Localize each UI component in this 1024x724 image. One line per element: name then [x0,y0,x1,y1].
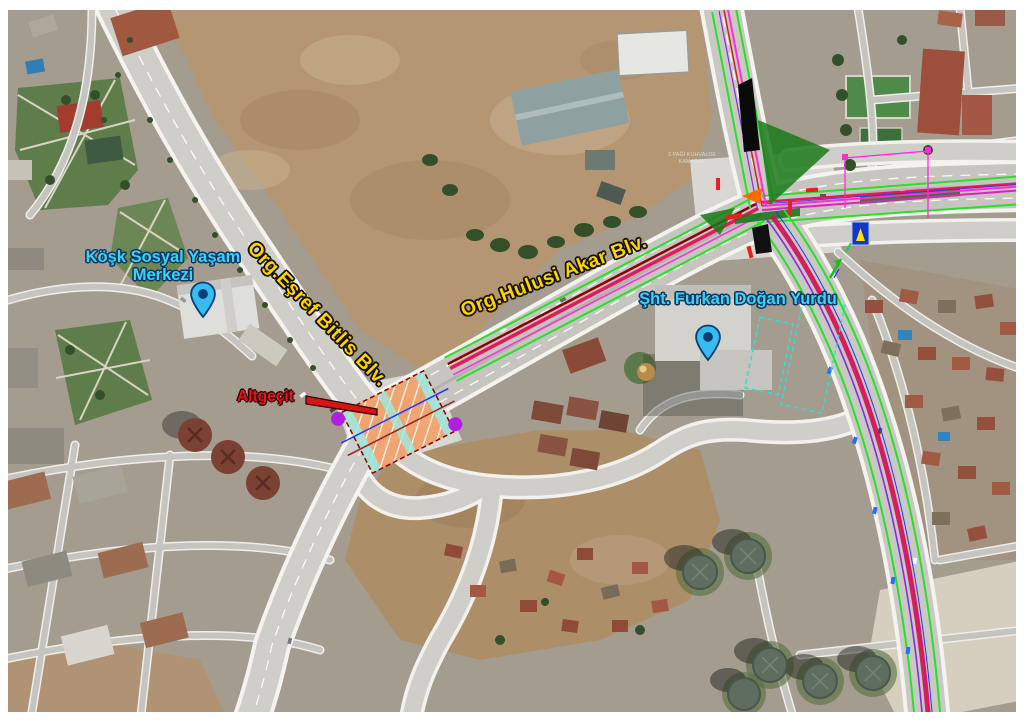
satellite-image [8,10,1016,712]
annotated-satellite-map: Köşk Sosyal Yaşam Merkezi Org.Eşref Bitl… [0,0,1024,724]
map-canvas: Köşk Sosyal Yaşam Merkezi Org.Eşref Bitl… [8,10,1016,712]
map-pin-furkan [694,324,722,367]
map-pin-kosk [189,281,217,324]
